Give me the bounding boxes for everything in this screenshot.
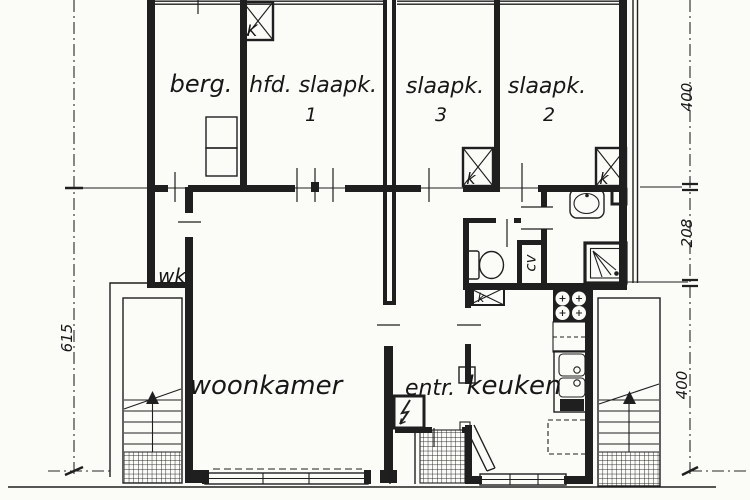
room-label-woonkamer: woonkamer	[190, 371, 345, 401]
room-number-slaapkamer2: 2	[543, 104, 555, 126]
room-label-berg: berg.	[170, 70, 233, 98]
dimension-label-right-top: 400	[678, 83, 696, 112]
stove-symbol	[553, 289, 588, 322]
flue-letter: k	[466, 169, 476, 188]
dimension-label-right-middle: 208	[678, 219, 696, 248]
room-label-cv: cv	[522, 253, 540, 271]
floor-plan: K k k k berg. hfd. slaapk. 1 slaapk. 3 s…	[0, 0, 750, 500]
floor-plan-svg: K k k k berg. hfd. slaapk. 1 slaapk. 3 s…	[0, 0, 750, 500]
dimension-label-right-bottom: 400	[673, 371, 691, 400]
room-label-keuken: keuken	[466, 371, 561, 401]
flue-letter: K	[247, 21, 259, 40]
room-label-slaapkamer3: slaapk.	[406, 74, 484, 99]
room-label-slaapkamer2: slaapk.	[508, 74, 586, 99]
room-label-hoofdslaapkamer: hfd. slaapk.	[249, 73, 377, 98]
room-number-hoofdslaapkamer: 1	[305, 104, 317, 126]
flue-letter: k	[599, 169, 609, 188]
room-label-werkkast: wk	[158, 264, 187, 288]
flue-letter: k	[478, 291, 486, 305]
room-number-slaapkamer3: 3	[435, 104, 447, 126]
dimension-label-left: 615	[58, 324, 76, 353]
room-label-entree: entr.	[405, 376, 455, 401]
